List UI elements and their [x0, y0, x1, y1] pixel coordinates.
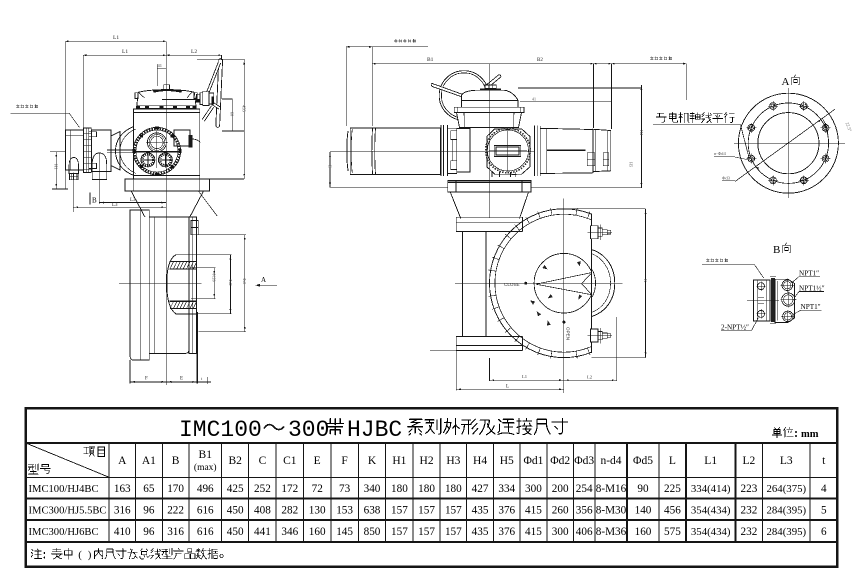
svg-text:316: 316: [167, 526, 184, 538]
svg-text:616: 616: [197, 504, 214, 516]
svg-text:8-M16: 8-M16: [596, 483, 627, 495]
svg-text:E: E: [327, 165, 332, 168]
svg-text:163: 163: [114, 483, 131, 495]
svg-text:406: 406: [576, 526, 593, 538]
svg-text:441: 441: [254, 526, 271, 538]
svg-text:252: 252: [254, 483, 271, 495]
svg-text:H3: H3: [446, 455, 460, 467]
svg-text:72: 72: [312, 483, 323, 495]
svg-text:Φ120: Φ120: [212, 273, 216, 282]
svg-text:F: F: [341, 455, 347, 467]
svg-text:F: F: [145, 377, 148, 382]
svg-text:435: 435: [472, 504, 489, 516]
svg-text:73: 73: [339, 483, 351, 495]
svg-text:2-NPT½″: 2-NPT½″: [721, 324, 749, 332]
svg-text:60: 60: [230, 112, 235, 116]
svg-text:160: 160: [635, 526, 652, 538]
svg-text:316: 316: [114, 504, 131, 516]
svg-text:L: L: [506, 385, 509, 390]
svg-text:300: 300: [288, 417, 329, 443]
svg-text:180: 180: [391, 483, 408, 495]
svg-text:232: 232: [741, 504, 758, 516]
svg-text:157: 157: [391, 526, 408, 538]
svg-text:225: 225: [664, 483, 681, 495]
svg-text:B2: B2: [537, 58, 543, 63]
svg-text:C: C: [259, 455, 267, 467]
svg-text:300: 300: [552, 526, 569, 538]
svg-text:Φd2: Φd2: [228, 279, 232, 286]
svg-text:425: 425: [227, 483, 244, 495]
svg-text:356: 356: [576, 504, 593, 516]
svg-text:450: 450: [227, 526, 244, 538]
svg-text:L2: L2: [587, 375, 593, 380]
svg-text:41: 41: [532, 97, 536, 102]
svg-text:41: 41: [158, 63, 163, 68]
svg-text:L1: L1: [113, 35, 119, 41]
svg-text:354(434): 354(434): [691, 504, 731, 516]
svg-text:260: 260: [552, 504, 569, 516]
svg-text:300: 300: [525, 483, 542, 495]
svg-text:IMC300/HJ6BC: IMC300/HJ6BC: [29, 527, 99, 538]
svg-text:145: 145: [336, 526, 353, 538]
svg-text:Φd3: Φd3: [722, 176, 731, 181]
svg-text:354(434): 354(434): [691, 526, 731, 538]
svg-text:B: B: [773, 244, 780, 256]
svg-text:L: L: [669, 455, 676, 467]
svg-text:427: 427: [472, 483, 489, 495]
svg-text:C1: C1: [283, 455, 297, 467]
svg-text:334(414): 334(414): [691, 483, 731, 495]
svg-text:Φd1: Φd1: [242, 278, 246, 285]
svg-text:8-M36: 8-M36: [596, 526, 627, 538]
svg-text:H2: H2: [420, 455, 434, 467]
svg-text:L1: L1: [122, 49, 128, 55]
svg-text:E: E: [180, 377, 183, 382]
svg-text:HJBC: HJBC: [347, 417, 402, 443]
svg-text:180: 180: [418, 483, 435, 495]
svg-text:222: 222: [167, 504, 184, 516]
svg-text:): ): [88, 549, 92, 561]
svg-text:A: A: [782, 76, 790, 88]
svg-text:B2: B2: [228, 455, 242, 467]
svg-text:L2: L2: [191, 49, 197, 55]
svg-text:B: B: [92, 197, 97, 205]
svg-text:NPT1″: NPT1″: [799, 270, 819, 278]
svg-text:376: 376: [498, 504, 515, 516]
svg-text:334: 334: [498, 483, 515, 495]
svg-text:450: 450: [227, 504, 244, 516]
svg-text:415: 415: [525, 504, 542, 516]
svg-text:376: 376: [498, 526, 515, 538]
svg-text:IMC100/HJ4BC: IMC100/HJ4BC: [29, 484, 99, 495]
svg-text:L2: L2: [743, 455, 756, 467]
svg-text:IMC100: IMC100: [179, 417, 262, 443]
svg-text:H5: H5: [629, 162, 634, 167]
svg-text:CLOSE: CLOSE: [504, 282, 520, 287]
svg-text:254: 254: [576, 483, 593, 495]
svg-text:90: 90: [637, 483, 649, 495]
svg-text:Φd3: Φd3: [574, 455, 594, 467]
svg-text:157: 157: [418, 504, 435, 516]
svg-text:157: 157: [391, 504, 408, 516]
svg-text:B1: B1: [427, 57, 434, 63]
svg-text:575: 575: [664, 526, 681, 538]
svg-text:A: A: [261, 276, 266, 284]
svg-text:IMC300/HJ5.5BC: IMC300/HJ5.5BC: [29, 505, 107, 516]
svg-text:140: 140: [635, 504, 652, 516]
svg-text:OPEN: OPEN: [566, 327, 571, 340]
svg-text:282: 282: [281, 504, 298, 516]
svg-text:n-Φd4: n-Φd4: [714, 151, 726, 156]
svg-text:L1: L1: [704, 455, 717, 467]
svg-text:284(395): 284(395): [767, 526, 807, 538]
svg-text:(: (: [78, 549, 82, 561]
svg-text:K: K: [368, 455, 377, 467]
svg-text:L3: L3: [780, 455, 793, 467]
svg-text:A1: A1: [142, 455, 156, 467]
svg-text:200: 200: [552, 483, 569, 495]
svg-text:455: 455: [242, 105, 247, 113]
svg-text:157: 157: [418, 526, 435, 538]
svg-text:H4: H4: [473, 455, 487, 467]
svg-text:340: 340: [364, 483, 381, 495]
svg-text:264(375): 264(375): [767, 483, 807, 495]
svg-text:A: A: [118, 455, 127, 467]
svg-text:850: 850: [364, 526, 381, 538]
svg-text:L3: L3: [112, 203, 118, 208]
svg-text:170: 170: [167, 483, 184, 495]
svg-text:4: 4: [821, 483, 827, 495]
svg-text:6: 6: [821, 526, 827, 538]
svg-text:180: 180: [445, 483, 462, 495]
svg-text:415: 415: [525, 526, 542, 538]
svg-text:153: 153: [336, 504, 353, 516]
svg-text:284(395): 284(395): [767, 504, 807, 516]
svg-text:456: 456: [664, 504, 681, 516]
svg-text:346: 346: [281, 526, 298, 538]
svg-text:H5: H5: [500, 455, 514, 467]
svg-text:8-M30: 8-M30: [596, 504, 627, 516]
svg-text:157: 157: [445, 526, 462, 538]
svg-text:96: 96: [143, 526, 155, 538]
svg-text:160: 160: [309, 526, 326, 538]
svg-text:L3: L3: [130, 198, 136, 203]
svg-text:Φd5: Φd5: [633, 455, 653, 467]
svg-text:5: 5: [821, 504, 827, 516]
svg-text:H1: H1: [54, 164, 59, 170]
svg-text:96: 96: [143, 504, 155, 516]
svg-text:H4: H4: [639, 130, 644, 136]
svg-text:mm: mm: [801, 429, 819, 440]
svg-text:157: 157: [445, 504, 462, 516]
svg-text:496: 496: [197, 483, 214, 495]
svg-text:638: 638: [364, 504, 381, 516]
svg-text:L1: L1: [522, 374, 528, 379]
svg-text:435: 435: [472, 526, 489, 538]
svg-text:223: 223: [741, 483, 758, 495]
svg-text:(max): (max): [194, 462, 217, 473]
svg-text:H1: H1: [392, 455, 406, 467]
svg-text:Φd2: Φd2: [550, 455, 570, 467]
svg-text:Φd1: Φd1: [523, 455, 543, 467]
svg-text:410: 410: [114, 526, 131, 538]
svg-text:172: 172: [281, 483, 298, 495]
svg-text:130: 130: [309, 504, 326, 516]
svg-text:232: 232: [741, 526, 758, 538]
svg-text:B: B: [172, 455, 180, 467]
svg-text:E: E: [314, 455, 321, 467]
svg-text:NPT1½″: NPT1½″: [799, 284, 825, 292]
svg-text:408: 408: [254, 504, 271, 516]
svg-text:65: 65: [143, 483, 155, 495]
svg-text:n-d4: n-d4: [600, 455, 621, 467]
svg-text:B1: B1: [199, 449, 213, 461]
svg-text:616: 616: [197, 526, 214, 538]
